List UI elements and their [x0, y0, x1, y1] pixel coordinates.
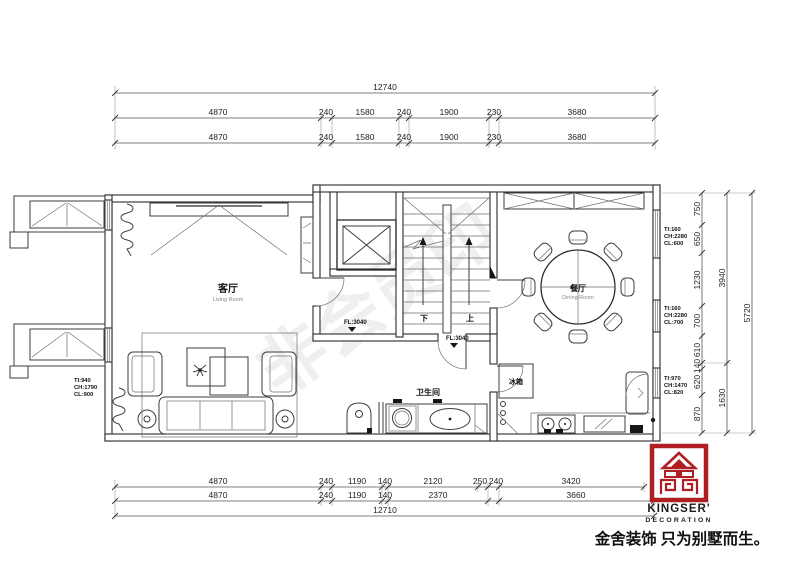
dim-label: 3680: [568, 107, 587, 117]
svg-text:CL:900: CL:900: [74, 392, 93, 398]
dim-label: 1630: [717, 388, 727, 407]
dim-label: 1900: [440, 107, 459, 117]
dining-room-label-zh: 餐厅: [569, 283, 586, 293]
svg-text:CL:820: CL:820: [664, 390, 683, 396]
shoe-cabinet: [301, 217, 313, 273]
floor-plan-page: 非会员印 12740 4870 240 1580 240 1900 230 36…: [0, 0, 800, 566]
dim-label: 140: [378, 476, 392, 486]
dimension-lines-top: 12740 4870 240 1580 240 1900 230 3680 48…: [112, 82, 658, 150]
brand-subtitle: DECORATION: [645, 517, 712, 524]
dim-label: 240: [489, 476, 503, 486]
floor-level-hall: FL:3040: [344, 320, 367, 326]
dim-right-overall: 5720: [742, 303, 752, 322]
bay-window-mid-left: [10, 324, 105, 378]
dim-label: 1230: [692, 270, 702, 289]
dim-label: 4870: [209, 107, 228, 117]
window-annotation-left: TI:940 CH:1790 CL:900: [74, 378, 97, 398]
living-room-label-en: Living Room: [213, 297, 244, 303]
closet: [504, 193, 644, 209]
tv-cabinet: [150, 203, 288, 255]
fridge-label: 冰箱: [509, 377, 523, 386]
level-marker: [450, 343, 458, 348]
svg-text:TI:940: TI:940: [74, 378, 91, 384]
dim-label: 3420: [562, 476, 581, 486]
dim-label: 4870: [209, 132, 228, 142]
dim-label: 240: [319, 132, 333, 142]
bathroom-label: 卫生间: [416, 387, 440, 397]
dim-label: 750: [692, 202, 702, 216]
dining-chair: [569, 231, 587, 244]
dim-label: 650: [692, 232, 702, 246]
dim-bottom-overall: 12710: [373, 505, 397, 515]
dim-label: 240: [397, 107, 411, 117]
bathroom-fixtures: [347, 399, 487, 433]
svg-text:CH:2280: CH:2280: [664, 313, 687, 319]
dim-label: 4870: [209, 476, 228, 486]
dim-label: 2370: [429, 490, 448, 500]
svg-text:CH:1790: CH:1790: [74, 385, 97, 391]
dim-label: 240: [319, 490, 333, 500]
electrical-panel: [630, 425, 643, 433]
floor-plan-drawing: 非会员印 12740 4870 240 1580 240 1900 230 36…: [0, 0, 800, 566]
window-annotation-right-middle: TI:160 CH:2280 CL:700: [664, 306, 687, 326]
svg-text:CL:700: CL:700: [664, 320, 683, 326]
dim-label: 140: [378, 490, 392, 500]
svg-text:TI:970: TI:970: [664, 376, 681, 382]
svg-text:TI:160: TI:160: [664, 227, 681, 233]
living-room-label-zh: 客厅: [217, 282, 238, 295]
dim-label: 240: [319, 107, 333, 117]
dim-label: 240: [397, 132, 411, 142]
svg-text:CH:2280: CH:2280: [664, 234, 687, 240]
dim-label: 140: [692, 359, 702, 373]
svg-text:CL:600: CL:600: [664, 241, 683, 247]
dim-label: 3680: [568, 132, 587, 142]
curtain-icon: [113, 388, 125, 431]
dim-label: 700: [692, 314, 702, 328]
dim-label: 1580: [356, 132, 375, 142]
dim-label: 230: [487, 107, 501, 117]
dim-label: 1900: [440, 132, 459, 142]
bay-window-top-left: [10, 196, 105, 248]
dim-label: 2120: [424, 476, 443, 486]
window-annotation-right-top: TI:160 CH:2280 CL:600: [664, 227, 687, 247]
dim-label: 240: [319, 476, 333, 486]
svg-text:TI:160: TI:160: [664, 306, 681, 312]
dim-label: 230: [487, 132, 501, 142]
dim-label: 1190: [348, 490, 367, 500]
window-annotation-right-bottom: TI:970 CH:1470 CL:820: [664, 376, 687, 396]
dining-room-label-en: Dining Room: [562, 295, 594, 301]
kitchen-fixtures: [497, 364, 655, 434]
dim-label: 1580: [356, 107, 375, 117]
brand-slogan: 金舍装饰 只为别墅而生。: [594, 529, 769, 548]
dim-label: 620: [692, 375, 702, 389]
curtain-icon: [121, 204, 133, 256]
brand-name: KINGSER': [647, 503, 710, 515]
dimension-lines-bottom: 4870 240 1190 140 2120 250 240 3420 4870…: [112, 476, 657, 519]
dim-label: 4870: [209, 490, 228, 500]
dim-label: 3660: [567, 490, 586, 500]
dim-label: 610: [692, 343, 702, 357]
dim-label: 870: [692, 407, 702, 421]
dim-label: 250: [473, 476, 487, 486]
dim-label: 1190: [348, 476, 367, 486]
dim-top-overall: 12740: [373, 82, 397, 92]
stairs-up-label: 上: [466, 313, 474, 323]
hall-door-to-dining: [497, 280, 525, 308]
kingser-logo: KINGSER' DECORATION: [645, 446, 712, 524]
svg-text:CH:1470: CH:1470: [664, 383, 687, 389]
dim-label: 3940: [717, 268, 727, 287]
stairs-down-label: 下: [420, 314, 428, 323]
